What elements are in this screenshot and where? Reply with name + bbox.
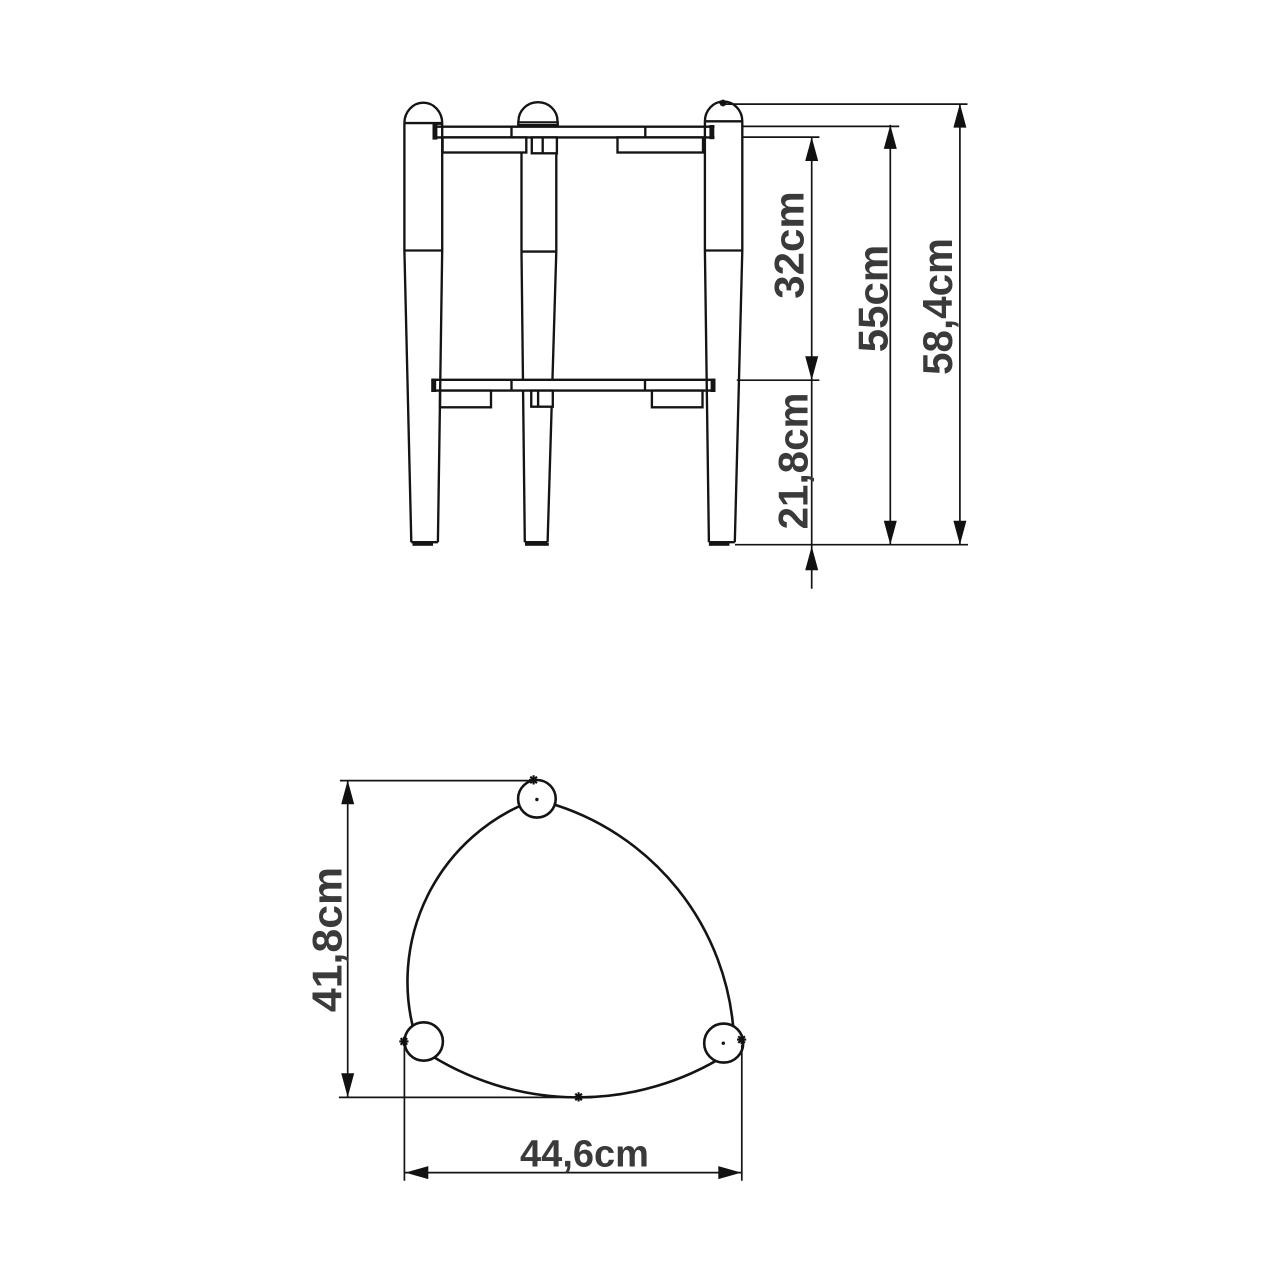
svg-text:41,8cm: 41,8cm [304,867,351,1012]
svg-text:32cm: 32cm [766,191,813,298]
svg-text:44,6cm: 44,6cm [520,1133,649,1175]
svg-text:58,4cm: 58,4cm [914,238,961,375]
svg-text:21,8cm: 21,8cm [770,393,817,530]
svg-text:55cm: 55cm [850,245,897,352]
